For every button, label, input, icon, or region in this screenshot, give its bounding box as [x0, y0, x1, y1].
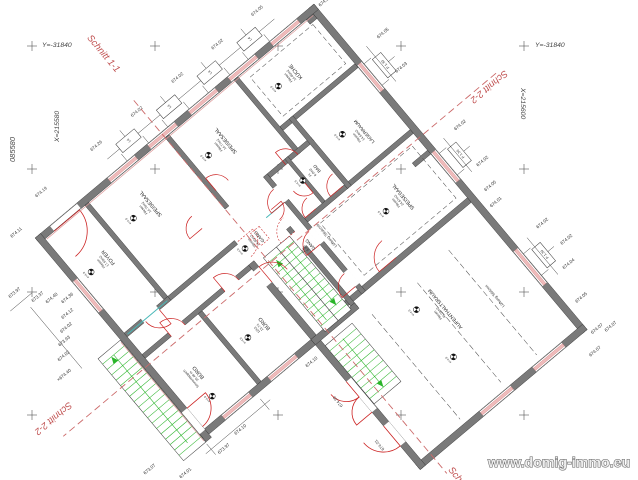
svg-text:Y=-31840: Y=-31840	[535, 42, 565, 49]
svg-text:X=215600: X=215600	[519, 87, 526, 119]
svg-text:X=215580: X=215580	[54, 111, 61, 143]
svg-text:Y=-31840: Y=-31840	[42, 42, 72, 49]
svg-text:www.domig-immo.eu: www.domig-immo.eu	[487, 455, 630, 471]
svg-text:085580: 085580	[8, 136, 17, 162]
